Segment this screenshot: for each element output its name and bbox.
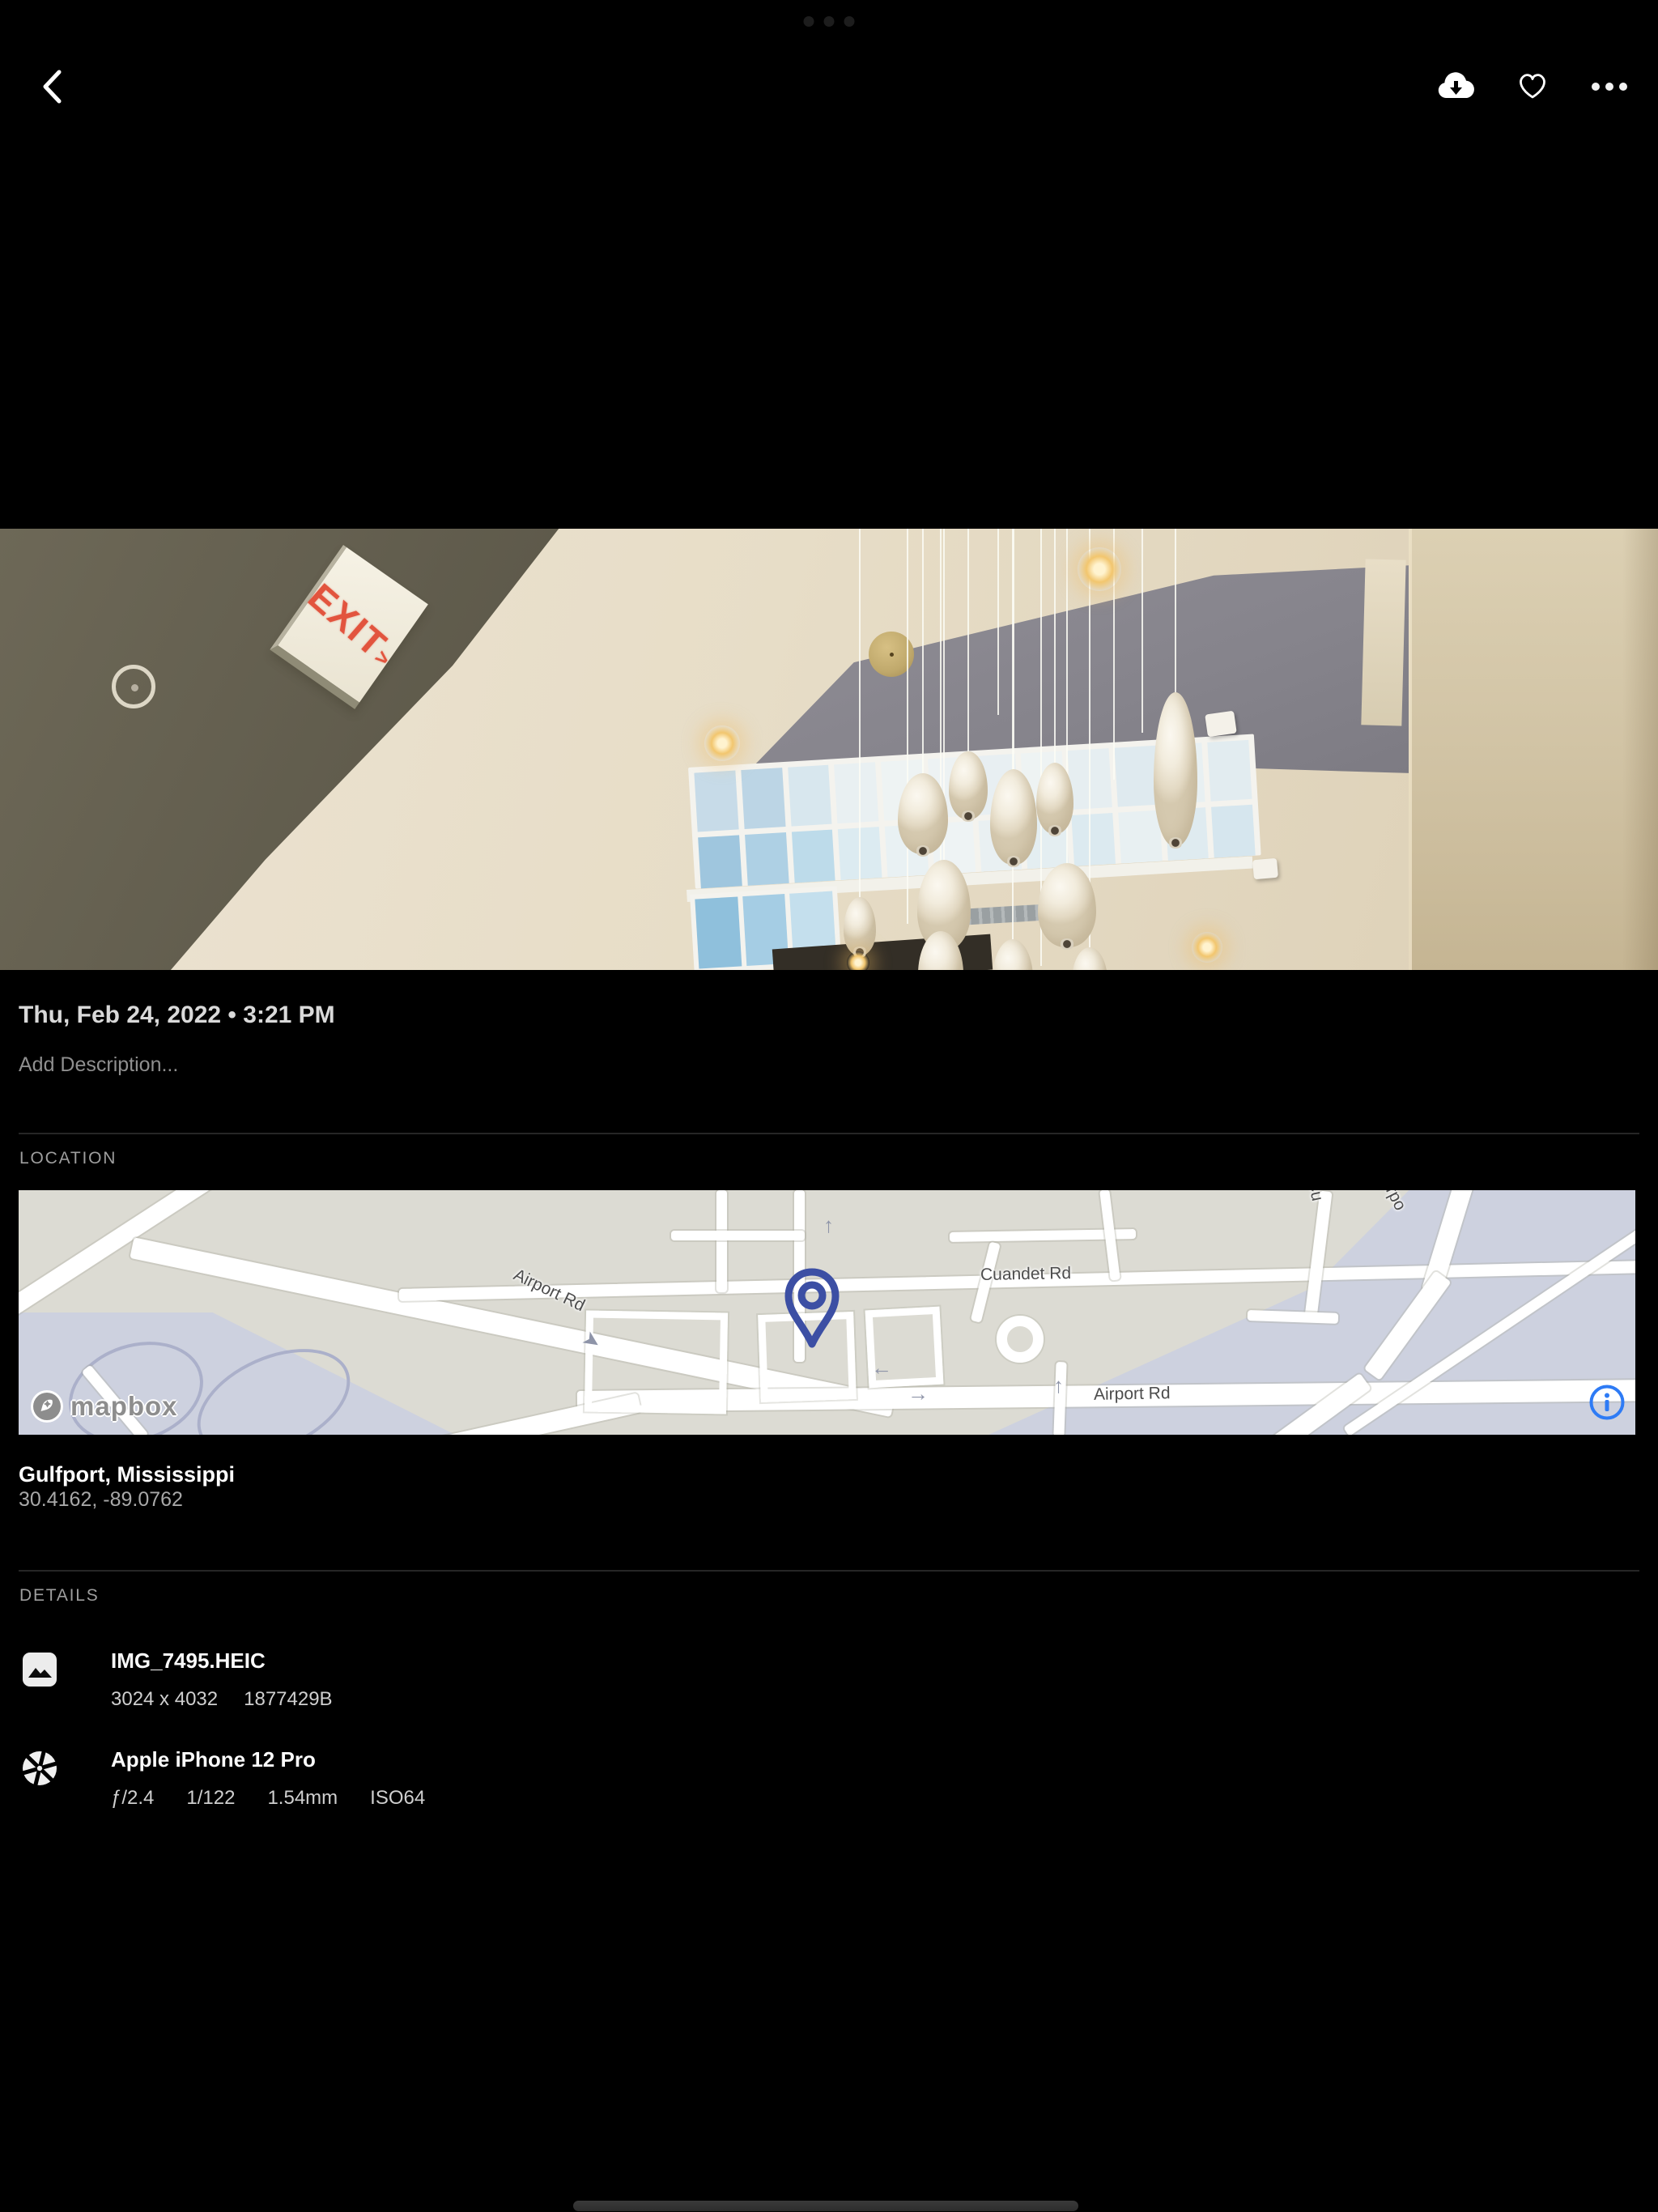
location-place: Gulfport, Mississippi	[19, 1462, 235, 1487]
info-icon	[1588, 1384, 1626, 1421]
cloud-download-icon	[1435, 71, 1476, 102]
lamp-cord	[997, 529, 999, 715]
map-road	[671, 1231, 805, 1240]
lamp-cord	[1141, 529, 1143, 733]
recessed-light	[847, 951, 869, 970]
lamp-cord	[859, 529, 861, 900]
photo-post	[1361, 559, 1405, 725]
divider	[19, 1570, 1639, 1572]
multitask-drag-indicator[interactable]	[804, 16, 855, 27]
recessed-light	[1078, 547, 1121, 591]
pendant-lamp	[844, 897, 876, 955]
window-pane	[745, 832, 789, 885]
lamp-cord	[1012, 529, 1014, 942]
map-label-cuandet-rd: Cuandet Rd	[980, 1264, 1071, 1285]
window-pane	[1114, 746, 1158, 807]
map-direction-arrow: ←	[871, 1355, 892, 1380]
photo-viewer[interactable]: EXIT>	[0, 529, 1658, 970]
location-map[interactable]: ➤←→↑↑ Airport Rd Cuandet Rd Airport Rd A…	[19, 1190, 1635, 1435]
window-pane	[1211, 805, 1255, 857]
window-pane	[741, 768, 785, 829]
details-section-label: DETAILS	[19, 1586, 100, 1606]
photo-column	[1409, 529, 1658, 970]
file-name: IMG_7495.HEIC	[111, 1648, 333, 1674]
lamp-cord	[1175, 529, 1176, 696]
file-meta: 3024 x 4032 1877429B	[111, 1688, 333, 1711]
map-parking-lot	[585, 1310, 728, 1414]
window-pane	[698, 836, 742, 888]
wall-speaker	[1205, 711, 1237, 738]
camera-meta: ƒ/2.4 1/122 1.54mm ISO64	[111, 1787, 425, 1810]
mapbox-attribution[interactable]: mapbox	[30, 1389, 178, 1423]
map-info-button[interactable]	[1588, 1384, 1626, 1425]
photo-right-shadow	[1622, 529, 1658, 970]
divider	[19, 1133, 1639, 1134]
window-pane	[1071, 813, 1115, 866]
location-coordinates: 30.4162, -89.0762	[19, 1488, 183, 1512]
download-button[interactable]	[1435, 70, 1477, 104]
window-pane	[1208, 740, 1252, 802]
window-pane	[694, 771, 738, 832]
map-direction-arrow: ↑	[1053, 1373, 1064, 1398]
window-pane	[791, 830, 835, 883]
map-direction-arrow: ↑	[823, 1213, 834, 1238]
lamp-cord	[922, 529, 924, 776]
more-options-button[interactable]	[1588, 78, 1630, 96]
window-pane	[695, 897, 742, 969]
pendant-lamp	[993, 939, 1033, 970]
back-button[interactable]	[32, 66, 71, 107]
photo-sprinkler	[112, 665, 155, 708]
lamp-cord	[1054, 529, 1056, 766]
camera-name: Apple iPhone 12 Pro	[111, 1747, 425, 1772]
lamp-cord	[967, 529, 969, 755]
window-pane	[834, 762, 878, 823]
map-road	[716, 1190, 727, 1292]
map-label-airport-rd-s: Airport Rd	[1094, 1384, 1171, 1405]
map-direction-arrow: →	[908, 1381, 929, 1406]
favorite-button[interactable]	[1516, 70, 1550, 102]
window-pane	[788, 765, 832, 827]
photo-datetime: Thu, Feb 24, 2022 • 3:21 PM	[19, 1002, 335, 1029]
mapbox-logo-icon	[30, 1389, 64, 1423]
wall-speaker	[1252, 858, 1278, 880]
image-icon	[22, 1652, 57, 1687]
ellipsis-icon	[1592, 83, 1627, 91]
file-detail-row: IMG_7495.HEIC 3024 x 4032 1877429B	[22, 1648, 333, 1711]
recessed-light	[704, 725, 740, 761]
recessed-light	[1192, 932, 1222, 963]
map-pin-icon	[783, 1266, 841, 1351]
lamp-cord	[907, 529, 908, 924]
camera-detail-row: Apple iPhone 12 Pro ƒ/2.4 1/122 1.54mm I…	[22, 1747, 425, 1810]
description-field[interactable]: Add Description...	[19, 1053, 178, 1077]
pendant-lamp	[1072, 947, 1107, 970]
heart-outline-icon	[1517, 71, 1548, 100]
chevron-left-icon	[40, 68, 64, 105]
location-section-label: LOCATION	[19, 1149, 117, 1168]
aperture-icon	[22, 1750, 57, 1786]
home-indicator[interactable]	[573, 2201, 1078, 2211]
window-pane	[1118, 810, 1162, 863]
map-roundabout	[997, 1316, 1044, 1363]
